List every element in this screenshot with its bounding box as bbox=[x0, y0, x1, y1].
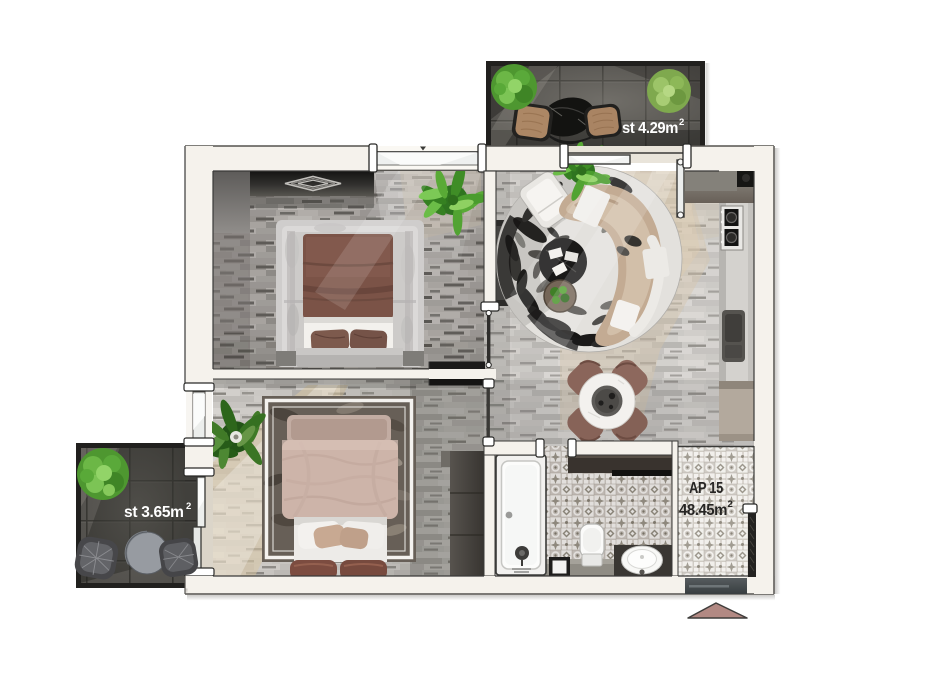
svg-text:2: 2 bbox=[679, 117, 684, 128]
svg-text:AP 15: AP 15 bbox=[689, 480, 723, 497]
svg-text:st 4.29m: st 4.29m bbox=[622, 120, 678, 137]
svg-text:48.45m: 48.45m bbox=[679, 502, 727, 519]
svg-text:2: 2 bbox=[728, 499, 733, 510]
svg-text:2: 2 bbox=[186, 501, 191, 512]
svg-text:st 3.65m: st 3.65m bbox=[124, 504, 184, 521]
